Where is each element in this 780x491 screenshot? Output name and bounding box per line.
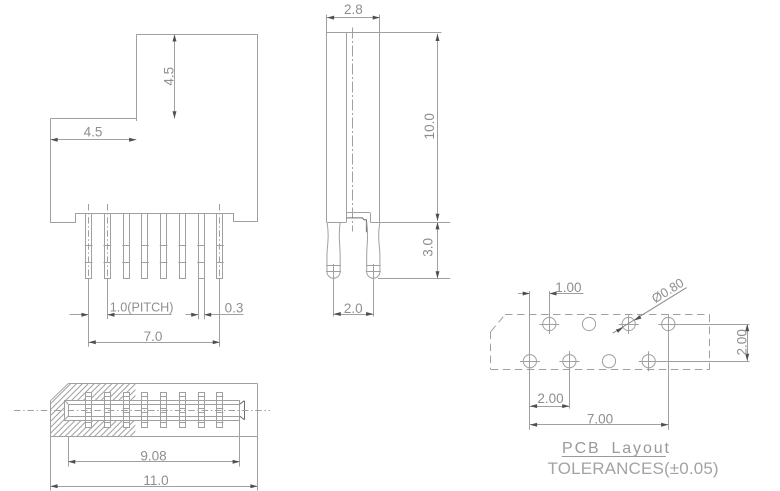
svg-text:11.0: 11.0 [143,473,168,488]
svg-text:2.00: 2.00 [537,391,563,406]
svg-text:PCB Layout: PCB Layout [562,440,671,457]
svg-text:0.3: 0.3 [225,300,244,315]
svg-text:2.0: 2.0 [344,301,363,316]
svg-text:10.0: 10.0 [422,113,437,139]
svg-text:3.0: 3.0 [420,238,435,257]
svg-text:7.00: 7.00 [587,412,613,427]
svg-text:TOLERANCES(±0.05): TOLERANCES(±0.05) [548,459,719,478]
svg-text:1.00: 1.00 [555,280,581,295]
svg-text:9.08: 9.08 [140,449,166,464]
svg-text:2.00: 2.00 [734,329,749,355]
svg-text:4.5: 4.5 [162,67,177,86]
svg-text:4.5: 4.5 [84,125,103,140]
svg-text:7.0: 7.0 [144,329,163,344]
svg-text:2.8: 2.8 [344,2,363,17]
svg-text:1.0(PITCH): 1.0(PITCH) [110,301,174,315]
